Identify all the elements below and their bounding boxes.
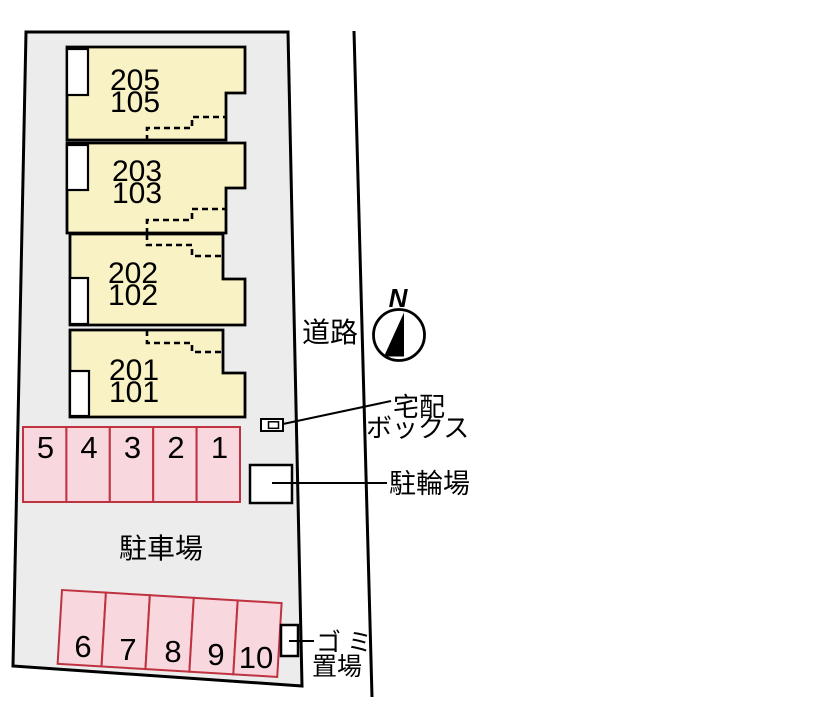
parking-space-number: 9 [207,637,224,672]
compass: N [374,283,425,361]
unit-201-101: 201 101 [70,330,245,417]
unit-205-105: 205 105 [67,47,245,141]
unit-202-102: 202 102 [70,234,245,325]
unit-number-lower: 105 [110,86,160,119]
parking-space-number: 10 [239,640,273,675]
unit-number-lower: 101 [109,376,159,409]
parking-row-top: 5 4 3 2 1 [23,427,240,502]
road-edge-line [354,31,372,697]
garbage-label-line2: 置場 [312,653,362,681]
site-plan-drawing: 205 105 203 103 202 102 201 101 5 4 3 2 … [0,0,840,720]
unit-number-lower: 102 [108,279,158,312]
unit-number-lower: 103 [112,177,162,210]
unit-203-103: 203 103 [67,143,245,234]
unit-205-entrance-notch [67,49,88,95]
parking-space-number: 3 [124,430,141,465]
delivery-box [261,419,283,431]
unit-202-entrance-notch [70,278,88,324]
parking-space-number: 5 [37,430,54,465]
parking-space-number: 8 [164,634,181,669]
site-plan-canvas: 205 105 203 103 202 102 201 101 5 4 3 2 … [0,0,840,720]
parking-space-number: 6 [74,629,91,664]
road-label: 道路 [302,317,358,348]
unit-201-entrance-notch [70,371,89,416]
parking-lot-label: 駐車場 [119,533,203,564]
parking-space-number: 1 [211,430,228,465]
parking-space-number: 4 [80,430,97,465]
bicycle-parking-group: 駐輪場 [250,465,470,503]
parking-space-number: 7 [119,632,136,667]
parking-space-number: 2 [167,430,184,465]
unit-203-entrance-notch [67,145,88,190]
delivery-box-label-line2: ボックス [366,413,469,443]
bicycle-parking-label: 駐輪場 [389,469,470,499]
